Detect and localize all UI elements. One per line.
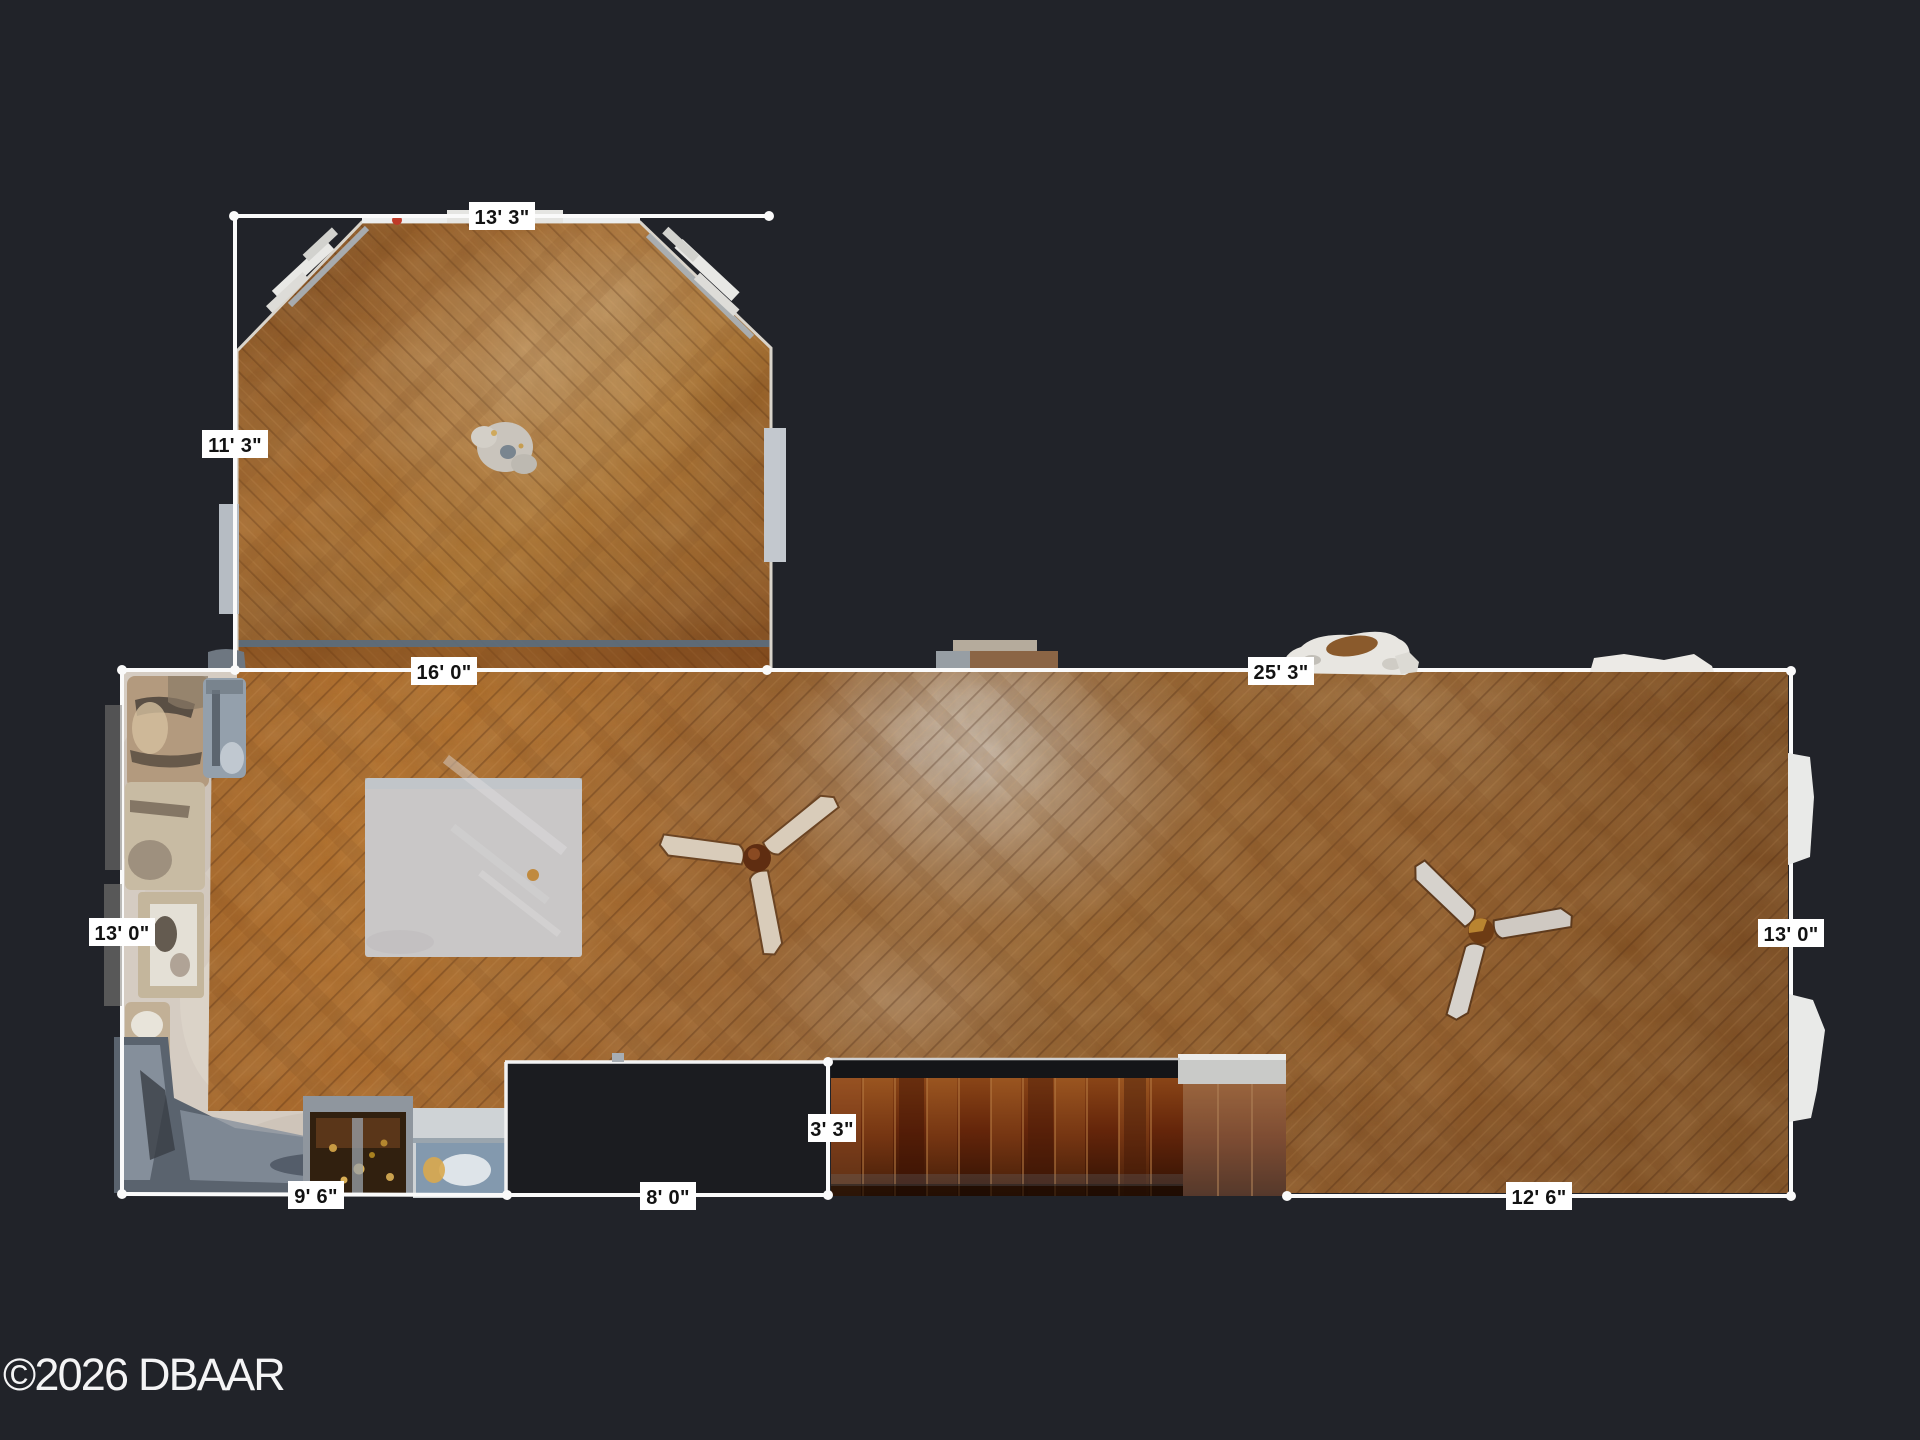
svg-text:16' 0": 16' 0" xyxy=(417,662,472,684)
svg-text:25' 3": 25' 3" xyxy=(1254,662,1309,684)
svg-text:8' 0": 8' 0" xyxy=(646,1187,690,1209)
svg-text:11' 3": 11' 3" xyxy=(208,435,262,457)
svg-text:3' 3": 3' 3" xyxy=(810,1119,854,1141)
svg-text:9' 6": 9' 6" xyxy=(294,1186,338,1208)
svg-text:13' 3": 13' 3" xyxy=(475,207,530,229)
svg-text:12' 6": 12' 6" xyxy=(1512,1187,1567,1209)
svg-text:©2026 DBAAR: ©2026 DBAAR xyxy=(3,1349,284,1400)
svg-text:13' 0": 13' 0" xyxy=(1764,924,1819,946)
svg-text:13' 0": 13' 0" xyxy=(95,923,150,945)
